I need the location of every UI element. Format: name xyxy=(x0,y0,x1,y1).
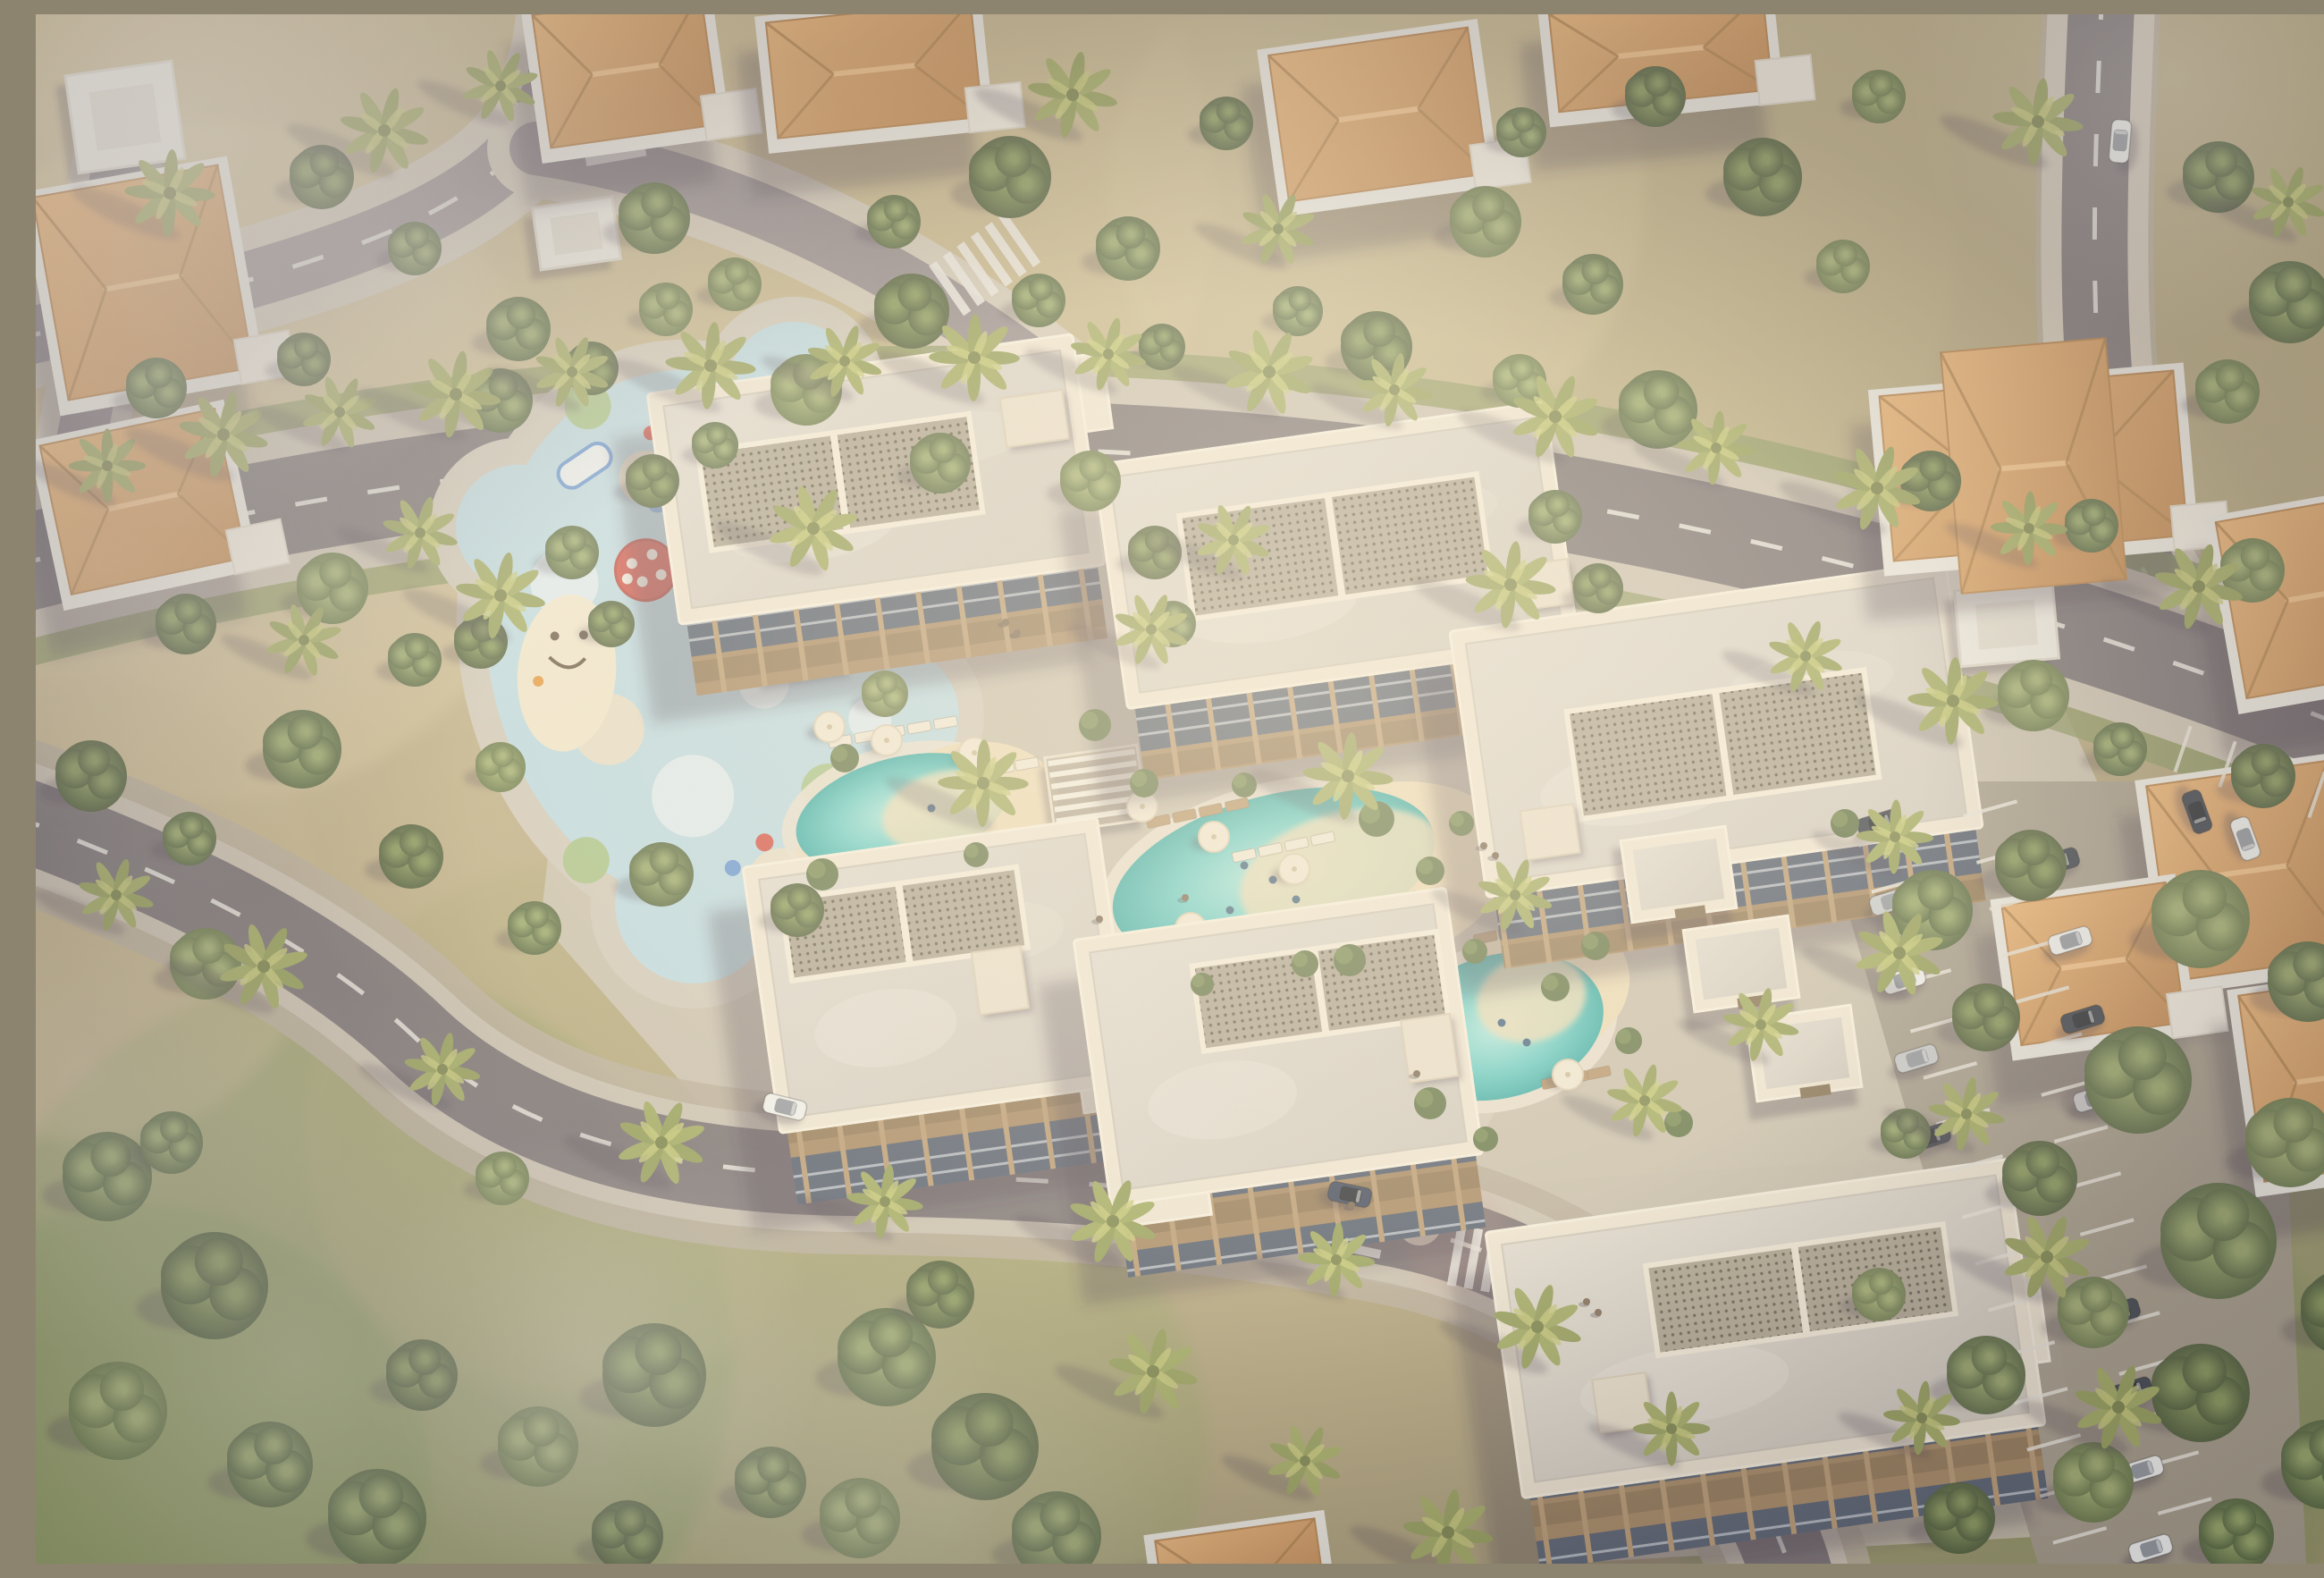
aerial-site-render xyxy=(36,14,2324,1564)
aerial-render-figure xyxy=(36,14,2324,1564)
vignette xyxy=(36,14,2324,1564)
atmosphere xyxy=(36,14,2324,1564)
